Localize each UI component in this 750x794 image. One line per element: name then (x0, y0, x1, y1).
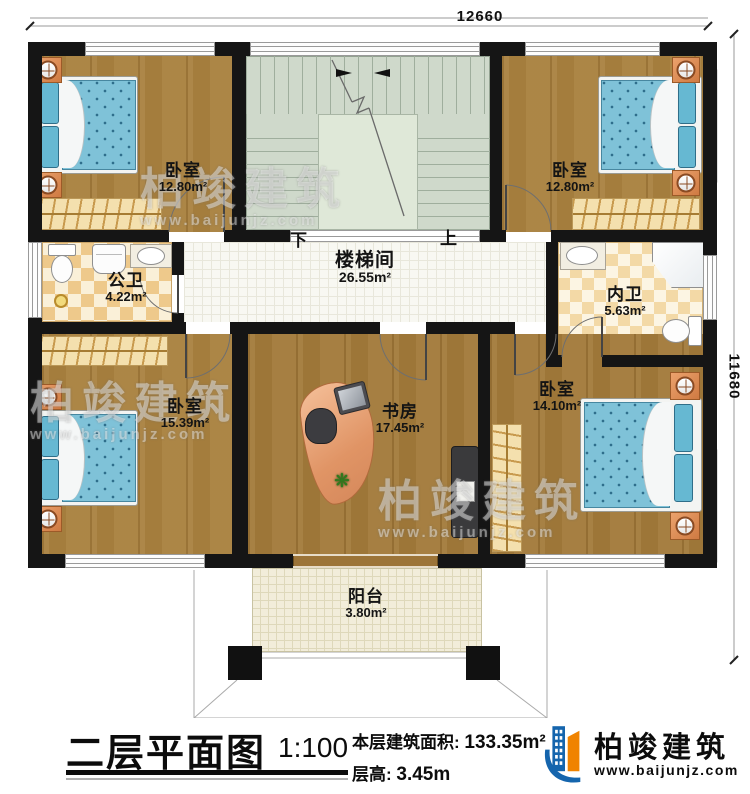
wall (426, 322, 515, 334)
bed-bl-pillow (41, 416, 59, 457)
wall (478, 334, 490, 554)
closet-tl (40, 198, 162, 230)
brand-logo-icon (538, 722, 592, 788)
brand-name: 柏竣建筑 (594, 724, 730, 766)
closet-br (492, 424, 522, 552)
wall (230, 322, 380, 334)
plant-icon: ❋ (334, 470, 350, 493)
dimension-right: 11680 (726, 337, 743, 417)
window (28, 242, 42, 318)
scale-label: 1:100 (278, 732, 348, 764)
floor-height-row: 层高: 3.45m (352, 760, 450, 786)
washing-machine-icon (92, 244, 126, 274)
wall (172, 242, 184, 275)
bed-tr-pillow (678, 126, 696, 168)
sink-icon (566, 246, 598, 265)
wall (232, 56, 246, 230)
window (85, 42, 215, 56)
closet-tr (572, 198, 700, 230)
wall (480, 230, 506, 242)
window (65, 554, 205, 568)
brand-website: www.baijunjz.com (594, 762, 739, 778)
wall (551, 230, 703, 242)
title-underline-thin (66, 778, 348, 780)
wall (602, 355, 703, 367)
balcony-column (228, 646, 262, 680)
balcony-column (466, 646, 500, 680)
floor-stair-hall (184, 242, 546, 322)
wall (42, 230, 169, 242)
stair-flight-left (246, 128, 318, 230)
window (703, 255, 717, 320)
tv-screen (456, 481, 475, 502)
office-chair (305, 408, 337, 444)
wall (172, 313, 184, 322)
toilet-icon (662, 319, 690, 343)
stair-landing (318, 114, 418, 230)
floor-height-value: 3.45m (396, 764, 450, 785)
floor-drain-icon (54, 294, 68, 308)
wall (232, 334, 248, 554)
stair-flight-right (416, 128, 490, 230)
lamp-icon (677, 61, 696, 80)
window (525, 554, 665, 568)
window (250, 42, 480, 56)
page-title: 二层平面图 (66, 722, 266, 777)
floor-area-row: 本层建筑面积: 133.35m² (352, 728, 546, 754)
title-block: 二层平面图 1:100 本层建筑面积: 133.35m² 层高: 3.45m 柏… (0, 718, 750, 794)
lamp-icon (676, 377, 695, 396)
nightstand (672, 170, 700, 196)
closet-bl (40, 336, 168, 366)
sink-icon (137, 247, 165, 265)
floor-plan-page: { "dimensions": { "top": "12660", "right… (0, 0, 750, 794)
bed-tl-pillow (41, 82, 59, 124)
lamp-icon (676, 517, 695, 536)
stair-up-label: 上 (440, 224, 457, 249)
bed-br-pillow (674, 454, 693, 502)
wall (490, 56, 502, 230)
dimension-top: 12660 (430, 8, 530, 25)
nightstand (670, 512, 700, 540)
lamp-icon (677, 174, 696, 193)
stair-flight-top (246, 56, 490, 114)
floor-balcony (252, 568, 482, 652)
wall (558, 355, 562, 367)
nightstand (670, 372, 700, 400)
toilet-bowl (51, 255, 73, 283)
tv-cabinet (451, 446, 479, 538)
floor-area-value: 133.35m² (464, 732, 545, 753)
bed-br-pillow (674, 404, 693, 452)
wall (546, 242, 558, 367)
window (525, 42, 660, 56)
stair-down-label: 下 (290, 226, 307, 251)
title-underline (66, 770, 348, 775)
bed-bl-pillow (41, 459, 59, 500)
bed-tr-pillow (678, 82, 696, 124)
toilet-tank (688, 316, 702, 346)
nightstand (672, 57, 700, 83)
bed-tl-pillow (41, 126, 59, 168)
balcony-sliding-door (293, 554, 438, 568)
wall (224, 230, 290, 242)
wall (42, 322, 186, 334)
